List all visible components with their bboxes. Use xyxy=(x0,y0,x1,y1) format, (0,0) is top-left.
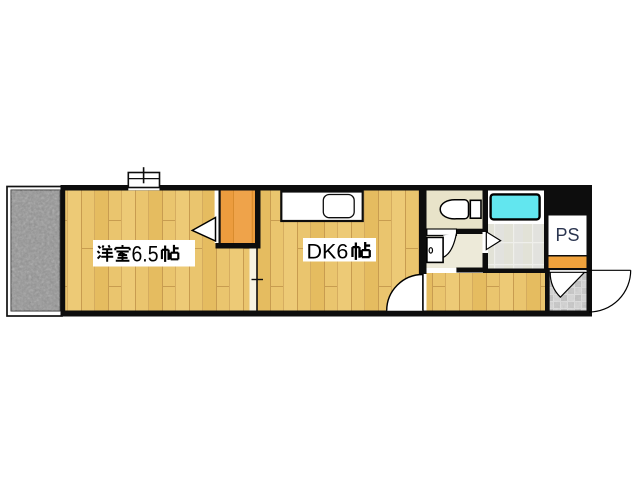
svg-text:DK6: DK6 xyxy=(307,240,349,264)
svg-text:PS: PS xyxy=(555,225,579,245)
svg-text:6.5: 6.5 xyxy=(132,242,159,267)
